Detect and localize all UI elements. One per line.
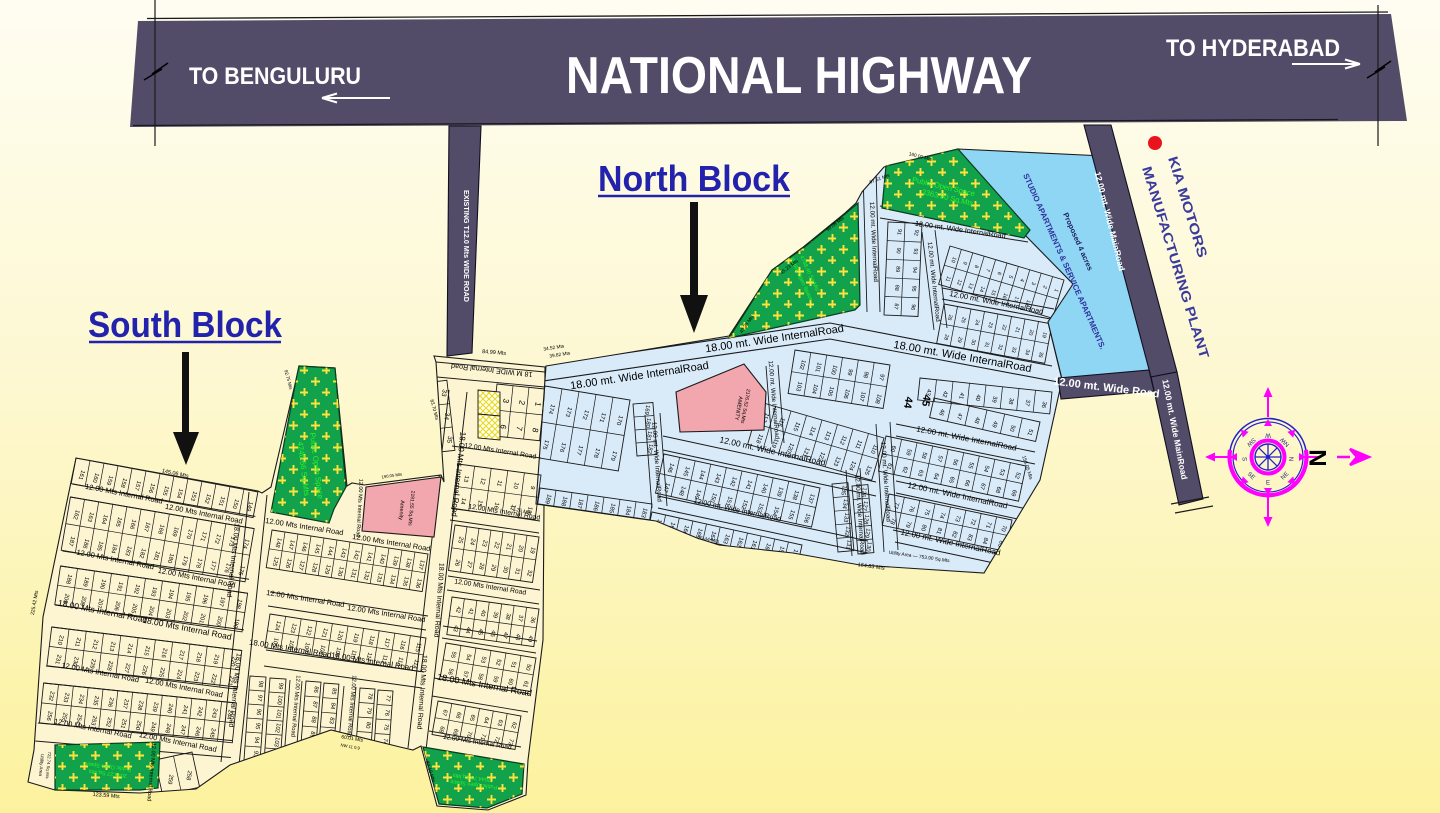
svg-text:91: 91 [895, 228, 902, 235]
svg-text:79: 79 [365, 707, 372, 715]
svg-text:92: 92 [912, 229, 919, 236]
svg-text:N: N [1305, 449, 1332, 466]
svg-text:E: E [1266, 481, 1270, 487]
svg-text:97: 97 [256, 694, 263, 702]
svg-text:TO BENGULURU: TO BENGULURU [189, 63, 361, 90]
svg-text:87: 87 [892, 303, 899, 310]
svg-text:South Block: South Block [88, 304, 283, 345]
svg-text:99: 99 [277, 682, 284, 690]
svg-text:87: 87 [311, 701, 318, 709]
svg-text:77: 77 [384, 694, 391, 702]
svg-text:S: S [1241, 457, 1247, 461]
svg-text:95: 95 [910, 285, 917, 292]
svg-text:EXISTING T12.0 Mts WIDE ROAD: EXISTING T12.0 Mts WIDE ROAD [462, 190, 471, 303]
svg-text:96: 96 [909, 304, 916, 311]
svg-text:NATIONAL HIGHWAY: NATIONAL HIGHWAY [566, 47, 1032, 105]
svg-text:44: 44 [901, 396, 915, 410]
svg-text:TO HYDERABAD: TO HYDERABAD [1166, 35, 1340, 62]
svg-text:94: 94 [911, 266, 918, 273]
svg-text:45: 45 [919, 394, 933, 408]
svg-text:North Block: North Block [598, 158, 791, 199]
svg-text:W: W [1265, 432, 1271, 438]
svg-text:N: N [1290, 457, 1296, 461]
svg-text:93: 93 [912, 248, 919, 255]
svg-text:89: 89 [894, 266, 901, 273]
svg-text:88: 88 [893, 284, 900, 291]
svg-text:90: 90 [895, 247, 902, 254]
